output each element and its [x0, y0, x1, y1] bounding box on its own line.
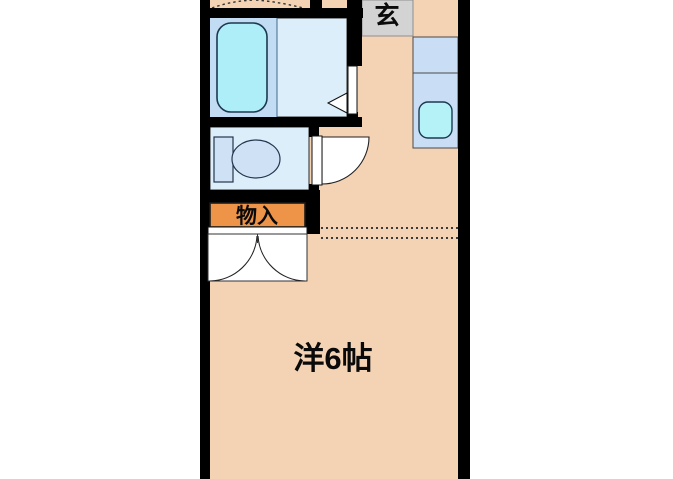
main-room-label: 洋6帖: [293, 341, 372, 376]
toilet-right-wall-upper: [309, 117, 319, 137]
bathroom-top-wall: [200, 8, 363, 18]
bathroom-bottom-wall: [200, 117, 362, 127]
toilet-tank: [214, 137, 233, 182]
storage-door-track: [208, 227, 307, 234]
bathtub: [217, 23, 267, 112]
entrance-side-wall: [347, 0, 362, 66]
kitchen-sink: [419, 102, 452, 138]
bathroom-door: [348, 66, 357, 114]
storage-label: 物入: [236, 204, 278, 228]
toilet-bowl: [232, 140, 280, 178]
toilet-door: [312, 136, 322, 185]
right-wall: [458, 0, 470, 479]
entrance-label: 玄: [374, 1, 399, 30]
floor-plan: 玄 物入 洋6帖: [0, 0, 673, 479]
storage-top-wall: [200, 190, 320, 203]
